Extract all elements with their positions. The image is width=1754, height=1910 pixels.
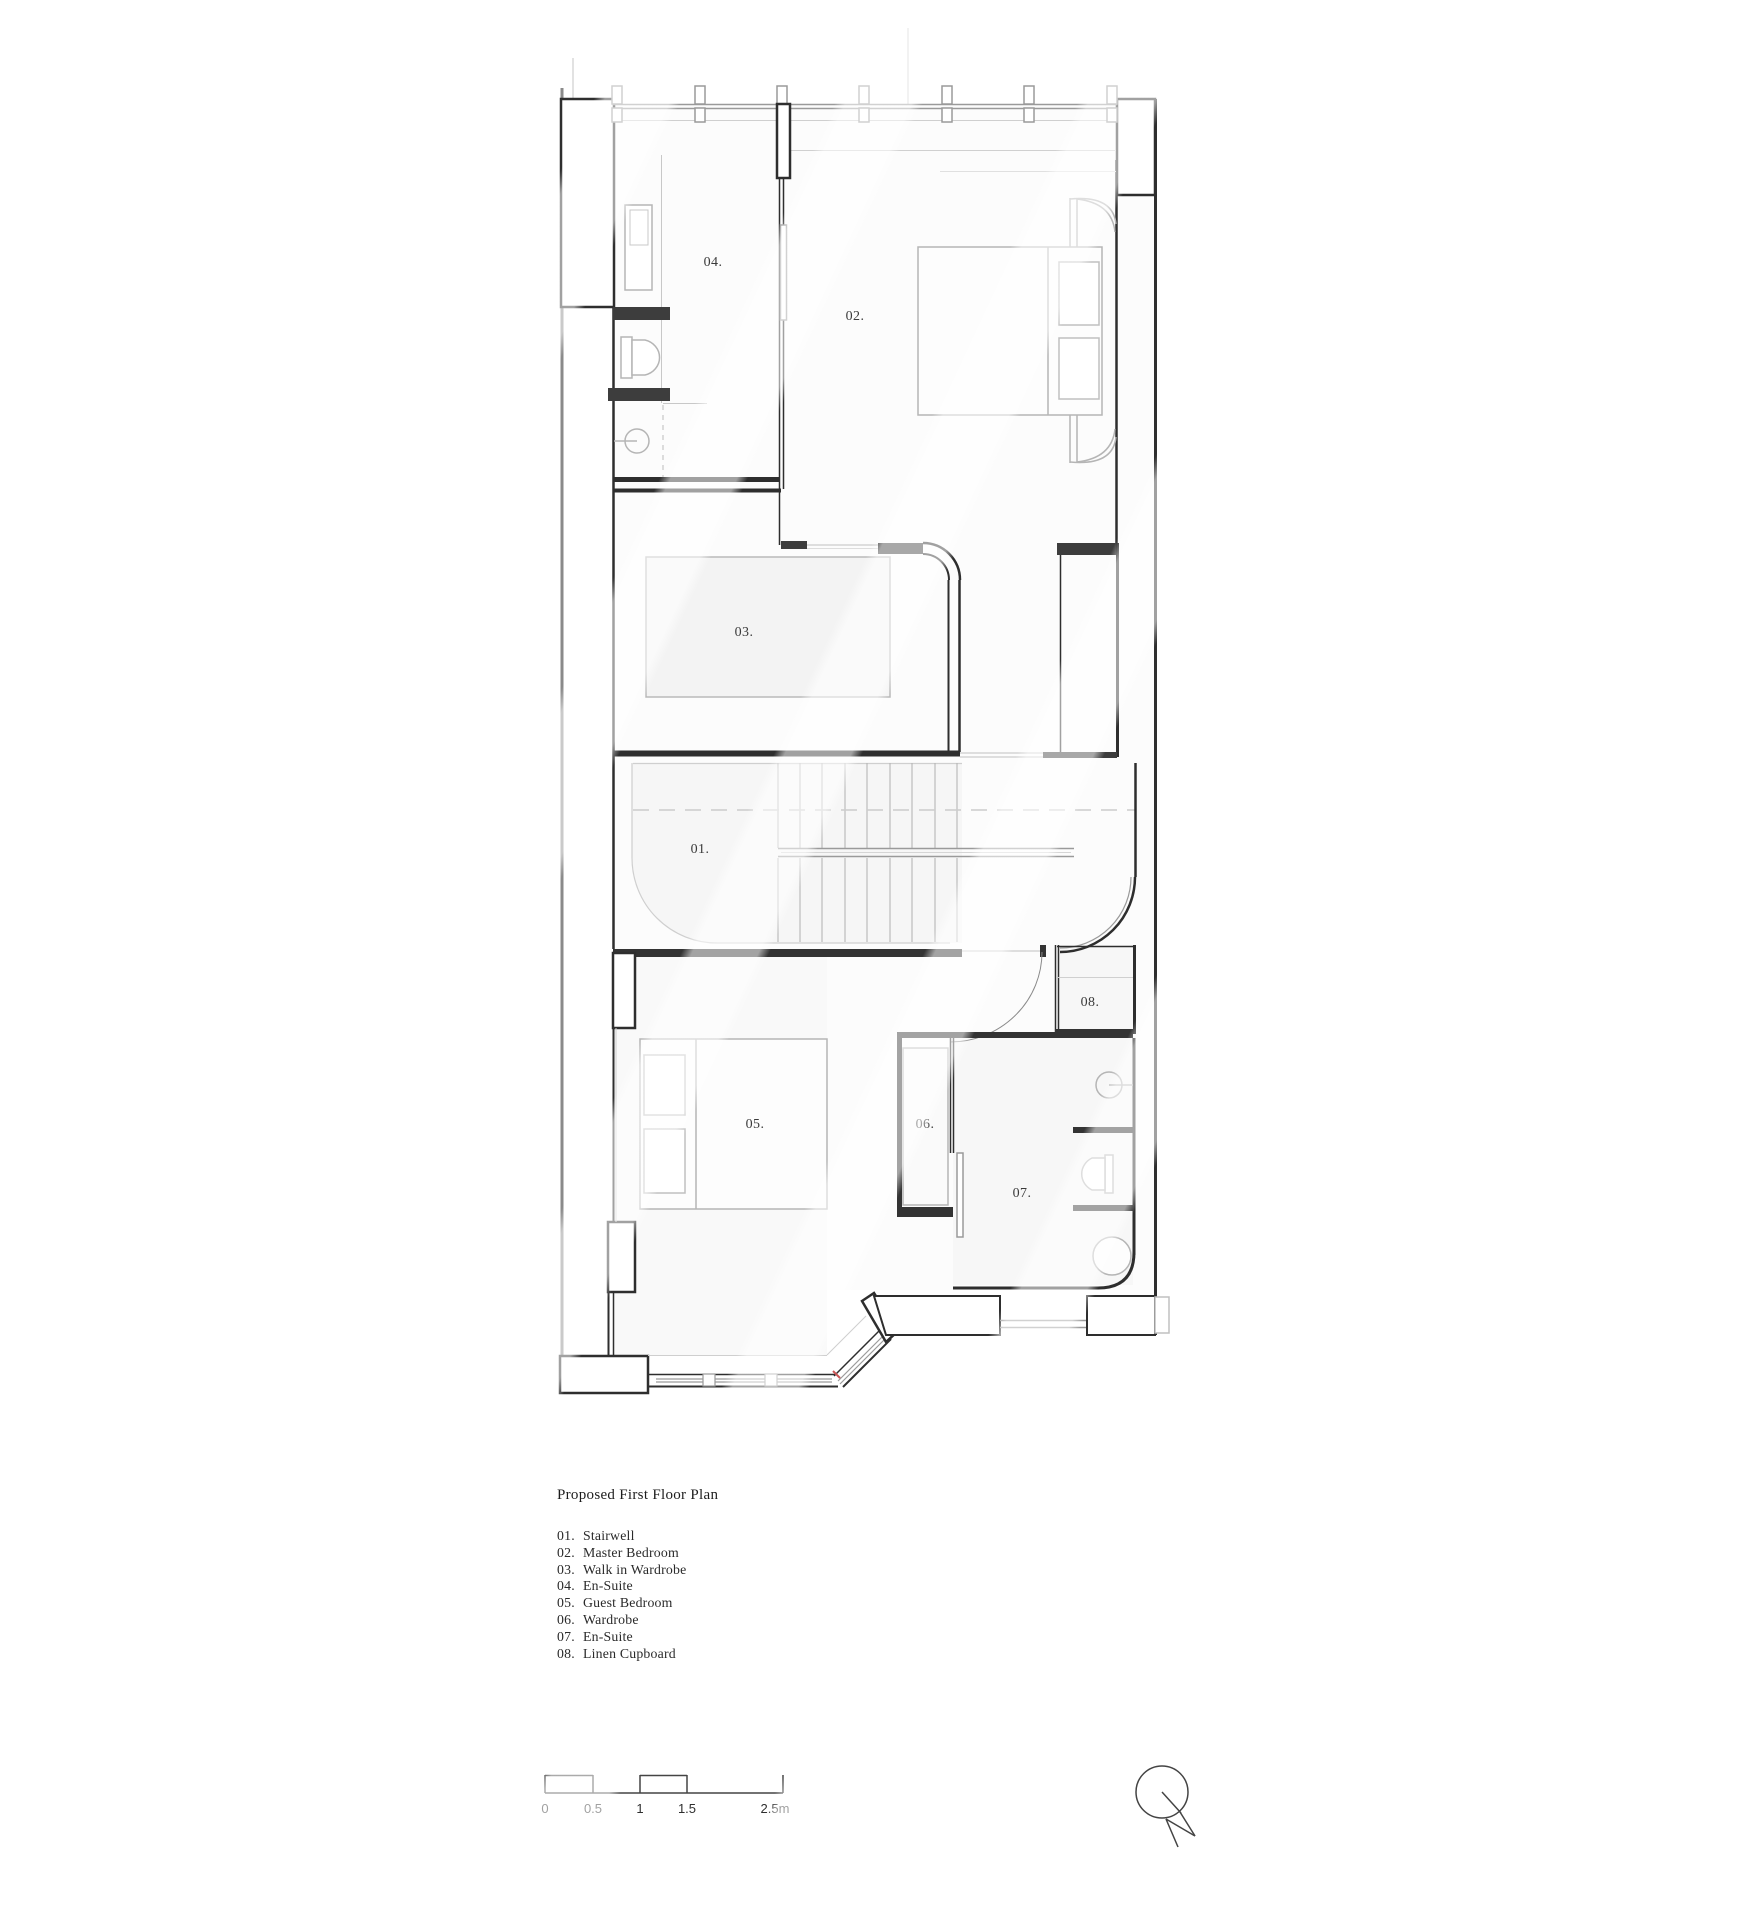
- legend-item-label: Master Bedroom: [583, 1545, 679, 1560]
- pocket-door-leaf: [781, 225, 787, 320]
- wall: [613, 949, 962, 957]
- room-label-01: 01.: [691, 842, 710, 857]
- wardrobe-island: [646, 557, 890, 697]
- legend-item-01: 01.Stairwell: [557, 1528, 718, 1545]
- wall-nib: [1073, 1205, 1134, 1211]
- legend-item-08: 08.Linen Cupboard: [557, 1646, 718, 1663]
- scale-label-0: 0: [541, 1801, 548, 1816]
- pillow: [1059, 338, 1099, 399]
- wall: [1055, 1029, 1135, 1034]
- legend-item-label: En-Suite: [583, 1629, 633, 1644]
- room-label-06: 06.: [916, 1117, 935, 1132]
- window-mullion: [703, 1374, 715, 1386]
- room-label-04: 04.: [704, 255, 723, 270]
- legend: Proposed First Floor Plan 01.Stairwell 0…: [557, 1487, 718, 1662]
- room-label-07: 07.: [1013, 1186, 1032, 1201]
- north-arrow-icon: [1136, 1766, 1195, 1847]
- legend-item-04: 04.En-Suite: [557, 1578, 718, 1595]
- drawing-sheet: 01. 02. 03. 04. 05. 06. 07. 08. 0 0.5 1 …: [0, 0, 1754, 1910]
- legend-item-number: 04.: [557, 1578, 583, 1595]
- legend-item-02: 02.Master Bedroom: [557, 1545, 718, 1562]
- page-title: Proposed First Floor Plan: [557, 1487, 718, 1504]
- wall-nib: [1073, 1127, 1134, 1133]
- legend-item-number: 02.: [557, 1545, 583, 1562]
- guest-bed: [640, 1039, 827, 1209]
- scale-label-15: 1.5: [678, 1801, 696, 1816]
- room-label-02: 02.: [846, 309, 865, 324]
- bay-window-band: [648, 1374, 838, 1387]
- scale-label-25m: 2.5m: [761, 1801, 790, 1816]
- legend-item-label: Guest Bedroom: [583, 1595, 673, 1610]
- wall-pier: [613, 953, 635, 1028]
- structural-column: [777, 104, 790, 178]
- room-label-08: 08.: [1081, 995, 1100, 1010]
- wall-step: [1155, 1297, 1169, 1333]
- wall-nib: [608, 388, 670, 401]
- corner-block: [560, 1356, 648, 1393]
- legend-item-number: 06.: [557, 1612, 583, 1629]
- wall-nib: [781, 541, 807, 549]
- door-leaf: [1040, 945, 1046, 957]
- wall: [897, 1038, 902, 1217]
- pillow: [644, 1129, 685, 1193]
- wall: [897, 1207, 953, 1217]
- sliding-door-leaf: [957, 1153, 963, 1237]
- legend-item-label: Wardrobe: [583, 1612, 639, 1627]
- legend-item-label: En-Suite: [583, 1578, 633, 1593]
- scale-bar: 0 0.5 1 1.5 2.5m: [541, 1775, 789, 1816]
- legend-item-06: 06.Wardrobe: [557, 1612, 718, 1629]
- legend-item-05: 05.Guest Bedroom: [557, 1595, 718, 1612]
- legend-item-number: 08.: [557, 1646, 583, 1663]
- scale-label-1: 1: [636, 1801, 643, 1816]
- room-label-03: 03.: [735, 625, 754, 640]
- shower-icon: [1093, 1237, 1131, 1275]
- legend-item-number: 07.: [557, 1629, 583, 1646]
- floor-plan: 01. 02. 03. 04. 05. 06. 07. 08. 0 0.5 1 …: [0, 0, 1754, 1910]
- rear-window-band: [1000, 1321, 1087, 1328]
- wall: [878, 543, 923, 554]
- legend-item-label: Walk in Wardrobe: [583, 1562, 686, 1577]
- pillow: [1059, 262, 1099, 325]
- wall-pier: [608, 1222, 635, 1292]
- wall-nib: [613, 307, 670, 320]
- window-mullion: [765, 1374, 777, 1386]
- scale-label-05: 0.5: [584, 1801, 602, 1816]
- legend-item-number: 03.: [557, 1562, 583, 1579]
- legend-item-03: 03.Walk in Wardrobe: [557, 1562, 718, 1579]
- legend-item-number: 05.: [557, 1595, 583, 1612]
- legend-item-label: Stairwell: [583, 1528, 635, 1543]
- room-label-05: 05.: [746, 1117, 765, 1132]
- legend-item-number: 01.: [557, 1528, 583, 1545]
- bottom-wall-block: [1087, 1296, 1155, 1335]
- pillow: [644, 1055, 685, 1115]
- legend-item-label: Linen Cupboard: [583, 1646, 676, 1661]
- legend-item-07: 07.En-Suite: [557, 1629, 718, 1646]
- bottom-wall-block: [874, 1296, 1000, 1335]
